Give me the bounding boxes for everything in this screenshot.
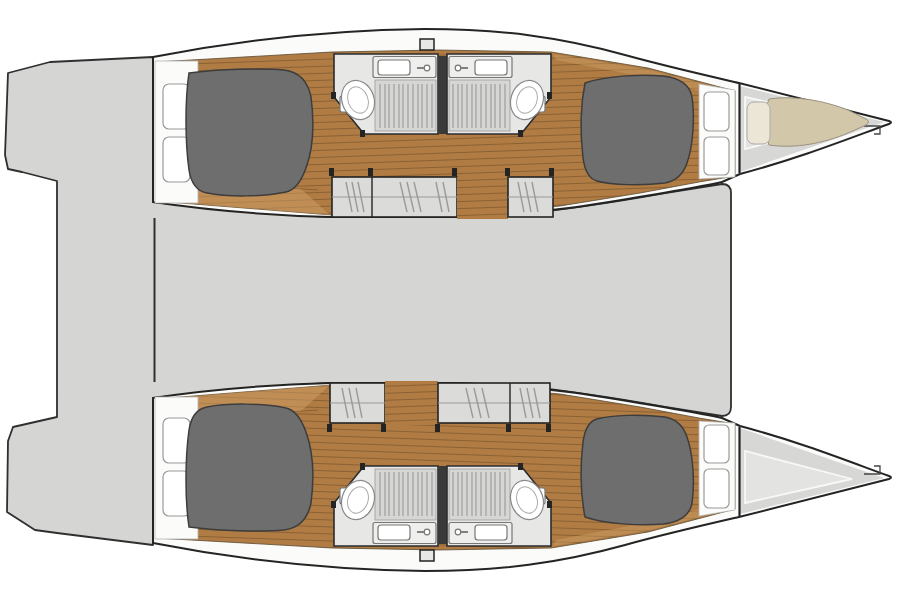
wet-room-divider-wall [438,56,447,134]
landing-wood [385,381,438,425]
deck-plan-canvas [0,0,900,600]
sink-basin [475,60,507,75]
faucet-knob [424,65,430,71]
post [452,168,457,176]
post [505,168,510,176]
aft-cabin-bed [186,69,313,196]
post [506,424,511,432]
door-post [331,92,336,99]
forward-cabin-bed [581,75,693,184]
post [546,424,551,432]
post [549,168,554,176]
sink-basin [378,60,410,75]
catamaran-deck-plan [0,0,900,600]
forepeak-mattress [765,98,869,147]
deck-hatch [420,39,434,50]
forward-locker-2 [704,137,729,175]
door-post [360,130,365,137]
post [435,424,440,432]
forepeak-pillow [747,102,770,144]
door-post [547,92,552,99]
post [381,424,386,432]
post [368,168,373,176]
post [329,168,334,176]
faucet-knob [455,65,461,71]
post [327,424,332,432]
landing-wood [457,177,508,219]
forward-locker-1 [704,92,729,131]
door-post [518,130,523,137]
